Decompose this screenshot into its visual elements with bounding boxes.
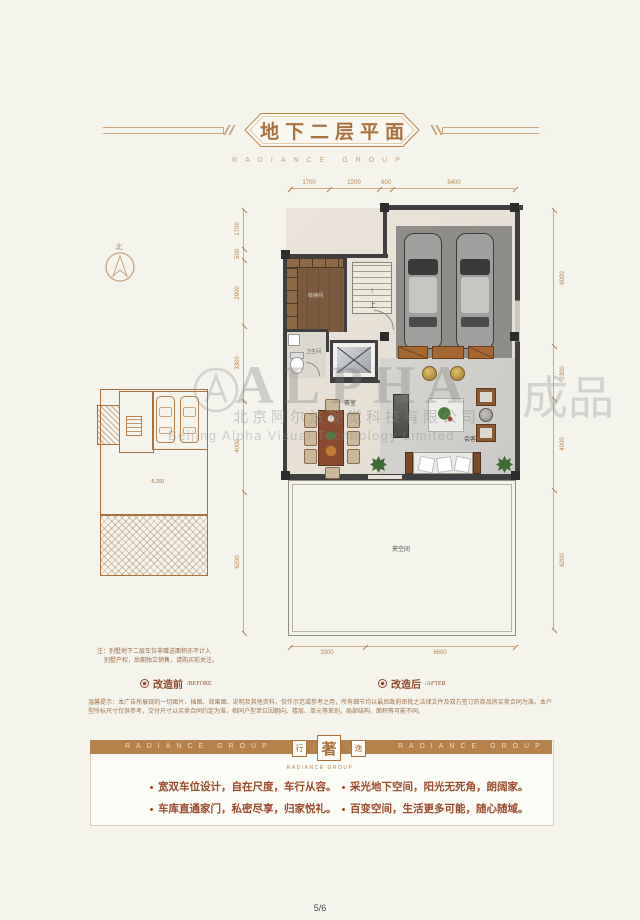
before-terrace-hatch (100, 514, 208, 576)
stool-icon (422, 366, 437, 381)
legend-after-label: 改造后 (391, 676, 421, 691)
band-left-text: RADIANCE GROUP (125, 743, 273, 750)
seal-right-char: 逸 (351, 740, 366, 757)
wall (383, 205, 523, 210)
sofa-end-table (405, 452, 413, 474)
column (380, 332, 389, 341)
dim-line-top: 1700 2200 600 5400 (290, 188, 515, 189)
chair-icon (347, 413, 360, 428)
bullet-dot-icon (150, 786, 153, 789)
legend-before-en: /BEFORE (187, 681, 212, 687)
dim-tick (242, 247, 248, 253)
brand-text: RADIANCE GROUP (0, 157, 640, 164)
dim-tick (552, 397, 558, 403)
wall (383, 205, 387, 258)
chair-icon (304, 449, 317, 464)
armchair-cushion (480, 428, 492, 438)
armchair-icon (476, 424, 496, 442)
column (510, 203, 519, 212)
car-icon (404, 233, 442, 349)
sofa-cushion (418, 456, 436, 474)
bullet-text: 百变空间，生活更多可能，随心随域。 (350, 804, 529, 815)
chair-icon (325, 399, 340, 411)
dim-label: 2900 (235, 286, 241, 299)
tea-room-label: 茶室 (344, 398, 356, 407)
note-line2: 别墅产权，后期独立销售，请购买前关注。 (104, 655, 218, 664)
seal-subtitle: RADIANCE GROUP (270, 765, 370, 771)
chair-icon (347, 449, 360, 464)
legend-after-en: /AFTER (425, 681, 446, 687)
plant-icon (496, 456, 513, 473)
coffee-table-icon (428, 398, 464, 432)
dim-tick (242, 258, 248, 264)
dim-line-bottom: 3300 6600 (290, 646, 515, 647)
dim-tick (552, 488, 558, 494)
wall (326, 332, 329, 352)
stairs-up-label: 上 (369, 300, 376, 310)
dim-tick (242, 399, 248, 405)
dim-tick (327, 187, 333, 193)
dim-label: 2200 (347, 180, 360, 186)
header-ornament-right (442, 127, 546, 134)
bathroom-label: 卫生间 (306, 348, 321, 355)
sofa-end-table (473, 452, 481, 474)
dim-tick (242, 631, 248, 637)
dim-label: 600 (381, 180, 391, 186)
dim-label: 6200 (560, 553, 566, 566)
brand-seal: 行 著 逸 (292, 735, 366, 761)
armchair-cushion (480, 392, 492, 402)
void-inner-border (292, 484, 512, 632)
dim-tick (390, 187, 396, 193)
before-elevation-label: -6.200 (150, 479, 164, 485)
console-table-icon (393, 394, 409, 438)
void-area (288, 480, 516, 636)
dim-tick (363, 645, 369, 651)
dim-tick (288, 645, 294, 651)
plant-icon (370, 456, 387, 473)
dim-tick (288, 187, 294, 193)
dim-tick (242, 324, 248, 330)
car-roof (461, 277, 489, 313)
dim-label: 4000 (560, 437, 566, 450)
disclaimer-text: 温馨提示：本广告所展现的一切图片、插图、效果图、说明及其他资料，仅作示范或参考之… (88, 699, 552, 716)
dim-label: 1700 (302, 180, 315, 186)
chair-icon (347, 431, 360, 446)
dim-label: 1700 (235, 222, 241, 235)
brochure-page: 地下二层平面 RADIANCE GROUP 北 1700 2200 600 54… (0, 0, 640, 920)
dim-tick (552, 208, 558, 214)
before-car-icon (156, 396, 175, 443)
seal-center-char: 著 (317, 735, 341, 761)
storage-label: 收纳间 (308, 292, 323, 299)
bullet-item: 车库直通家门，私密尽享，归家悦礼。 (150, 801, 337, 816)
bullet-text: 宽双车位设计，自在尺度，车行从容。 (158, 782, 337, 793)
cabinet-icon (432, 346, 464, 359)
dim-line-right: 6000 2300 4000 6200 (553, 210, 554, 630)
car-rear-window (461, 317, 489, 327)
sofa-cushion (454, 456, 471, 473)
car-icon (456, 233, 494, 349)
dim-line-left: 1700 500 2900 3300 4000 6200 (243, 210, 244, 633)
before-stairs-icon (126, 416, 142, 436)
before-annex-hatch (97, 405, 120, 445)
tea-table-icon (318, 410, 344, 466)
dim-tick (513, 645, 519, 651)
chair-icon (304, 413, 317, 428)
sofa-cushion (436, 456, 453, 473)
dim-label: 2300 (560, 366, 566, 379)
column (380, 203, 389, 212)
bullet-dot-icon (342, 808, 345, 811)
band-right-text: RADIANCE GROUP (398, 743, 546, 750)
wall (284, 329, 328, 332)
void-label: 夹空间 (392, 544, 410, 553)
legend-before-label: 改造前 (153, 676, 183, 691)
column (281, 471, 290, 480)
bullet-item: 采光地下空间，阳光无死角，朗阔家。 (342, 779, 529, 794)
dim-label: 6000 (560, 271, 566, 284)
sofa-icon (413, 452, 473, 474)
wall (330, 380, 380, 383)
legend-after: 改造后/AFTER (378, 676, 446, 691)
seal-arrow-icon (306, 744, 317, 753)
chair-icon (304, 431, 317, 446)
dim-label: 4000 (235, 439, 241, 452)
elevator-icon (330, 340, 378, 380)
bullet-text: 采光地下空间，阳光无死角，朗阔家。 (350, 782, 529, 793)
compass-icon (104, 251, 136, 283)
side-table-icon (479, 408, 493, 422)
car-roof (409, 277, 437, 313)
stool-icon (450, 366, 465, 381)
cabinet-icon (468, 346, 494, 359)
wall (284, 254, 388, 258)
chair-icon (325, 467, 340, 479)
wall (344, 258, 347, 332)
door-gap (368, 475, 402, 479)
cabinet-icon (398, 346, 428, 359)
column (510, 332, 519, 341)
page-number: 5/6 (0, 903, 640, 913)
dim-tick (242, 490, 248, 496)
car-rear-window (409, 317, 437, 327)
dim-label: 5400 (447, 180, 460, 186)
up-arrow-icon: ↑ (370, 286, 374, 295)
column (511, 471, 520, 480)
seal-left-char: 行 (292, 740, 307, 757)
bullet-dot-icon (150, 808, 153, 811)
legend-dot-icon (378, 679, 387, 688)
dim-label: 3300 (235, 356, 241, 369)
note-line1: 注：别墅地下二层车位非赠送面积亦不计入 (97, 646, 211, 655)
elevator-cab (337, 347, 371, 373)
column (281, 250, 290, 259)
page-title: 地下二层平面 (237, 112, 427, 148)
dim-tick (552, 628, 558, 634)
bullet-dot-icon (342, 786, 345, 789)
wall (515, 360, 520, 480)
dim-tick (513, 187, 519, 193)
before-car-icon (180, 396, 199, 443)
armchair-icon (476, 388, 496, 406)
shelf-unit (286, 268, 298, 330)
dim-label: 3300 (320, 650, 333, 656)
seal-arrow-icon (340, 744, 351, 753)
header-ornament-left (96, 127, 224, 134)
dim-label: 6600 (433, 650, 446, 656)
legend-dot-icon (140, 679, 149, 688)
dim-label: 6200 (235, 555, 241, 568)
car-windshield (460, 259, 490, 275)
shelf-unit (286, 258, 344, 268)
sink-icon (288, 334, 300, 346)
watermark-extra-text: 成品 (522, 362, 614, 428)
dim-label: 500 (235, 249, 241, 259)
dim-tick (377, 187, 383, 193)
wall (283, 254, 287, 480)
car-windshield (408, 259, 438, 275)
dim-tick (242, 208, 248, 214)
bullet-item: 宽双车位设计，自在尺度，车行从容。 (150, 779, 337, 794)
dim-tick (552, 344, 558, 350)
bullet-item: 百变空间，生活更多可能，随心随域。 (342, 801, 529, 816)
legend-before: 改造前/BEFORE (140, 676, 212, 691)
bullet-text: 车库直通家门，私密尽享，归家悦礼。 (158, 804, 337, 815)
